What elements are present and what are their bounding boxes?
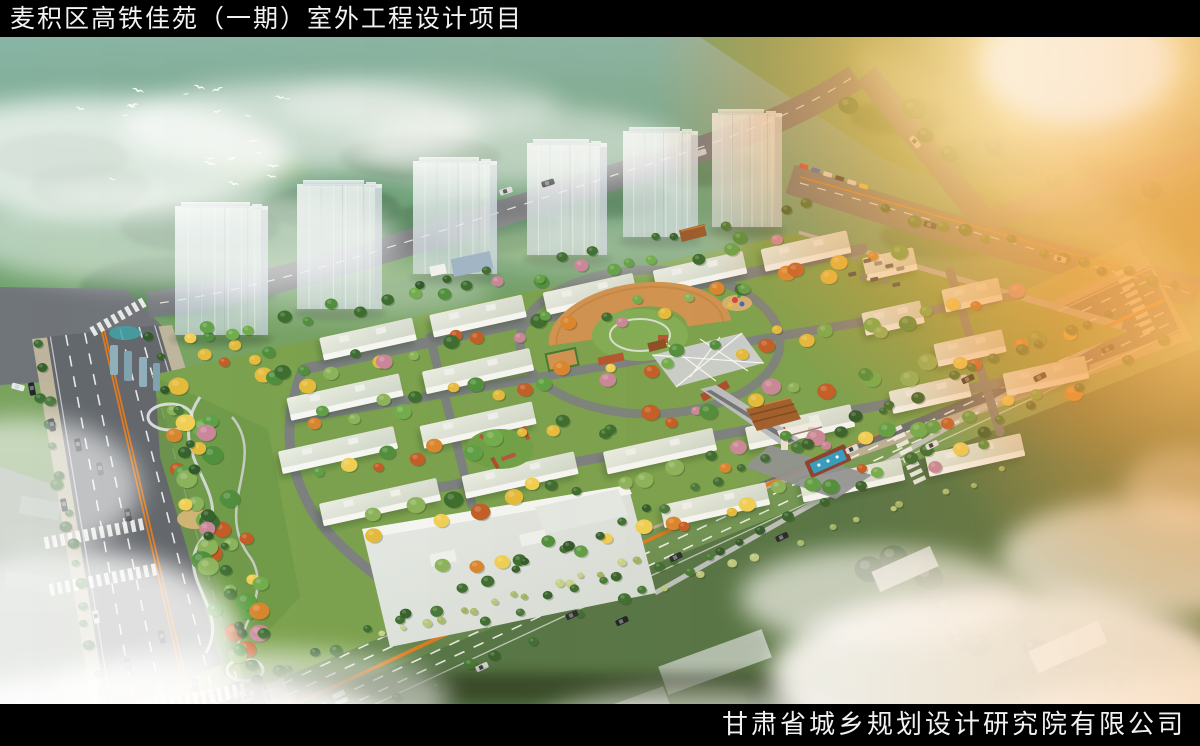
- aerial-rendering-image: [0, 37, 1200, 704]
- project-title: 麦积区高铁佳苑（一期）室外工程设计项目: [10, 4, 523, 33]
- aerial-rendering-svg: [0, 37, 1200, 704]
- credit-bar: 甘肃省城乡规划设计研究院有限公司: [0, 704, 1200, 746]
- company-name: 甘肃省城乡规划设计研究院有限公司: [722, 710, 1186, 740]
- sun-glare: [0, 37, 1200, 704]
- presentation-board: 麦积区高铁佳苑（一期）室外工程设计项目: [0, 0, 1200, 746]
- title-bar: 麦积区高铁佳苑（一期）室外工程设计项目: [0, 0, 1200, 37]
